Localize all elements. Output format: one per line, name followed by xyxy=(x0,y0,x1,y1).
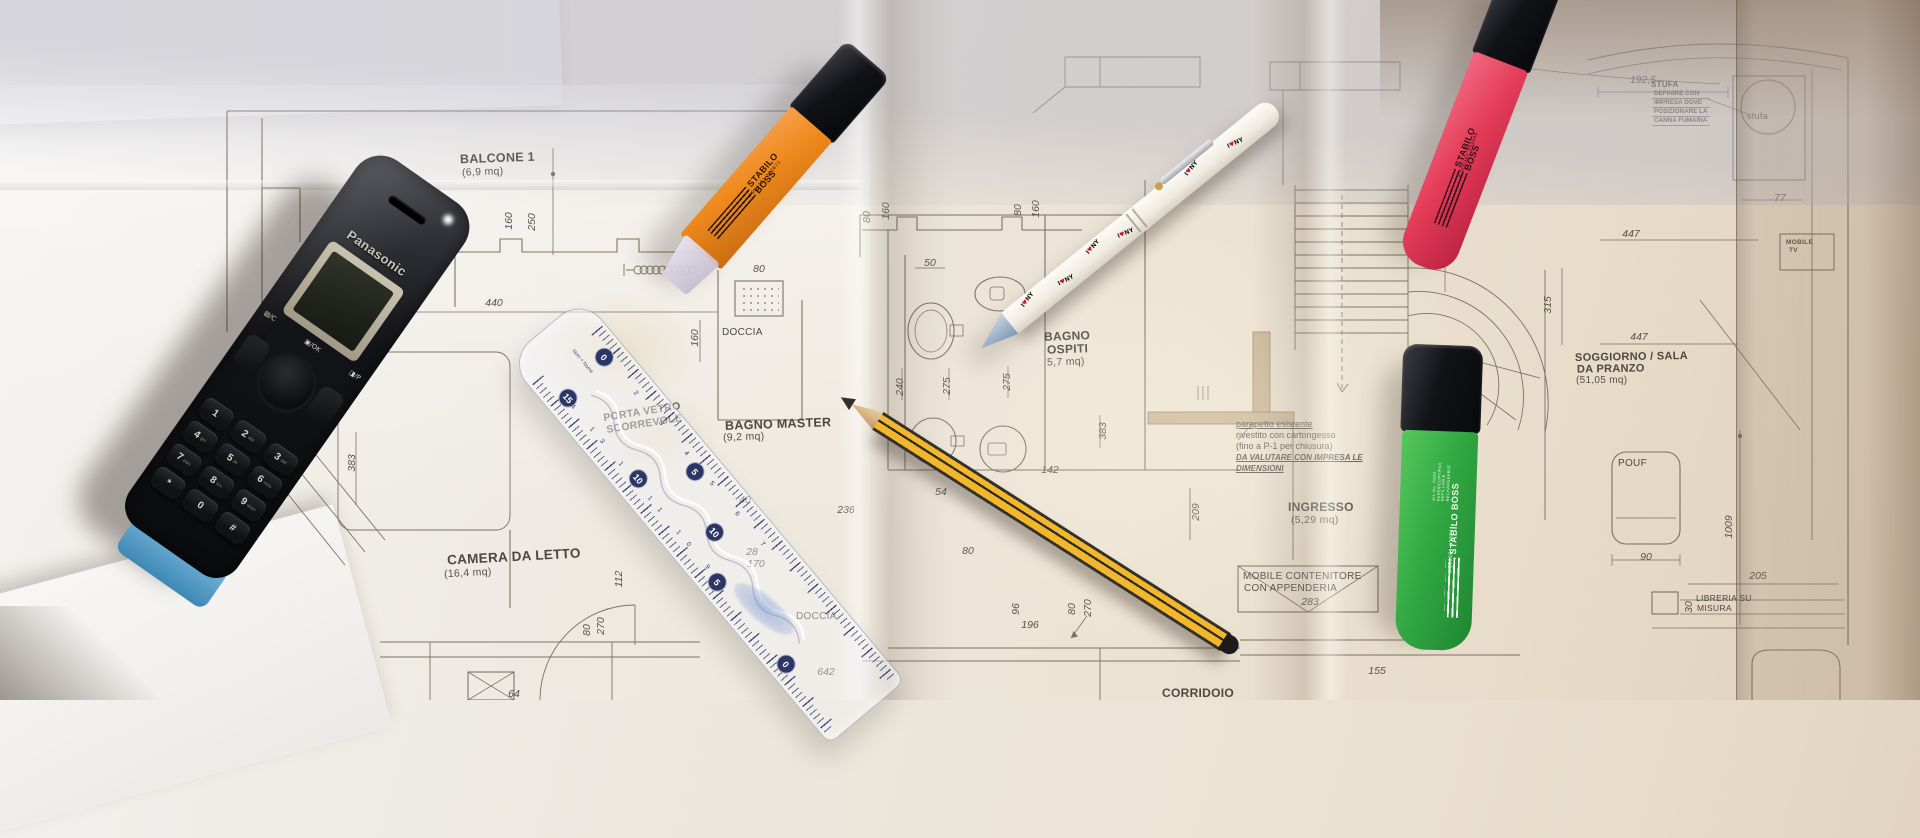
shower-symbol xyxy=(735,281,783,316)
door-symbol xyxy=(540,605,635,700)
paper-page-edge xyxy=(1736,0,1920,700)
highlighter-green: STABILO BOSS 4 006381 333641 Art.-No. 70… xyxy=(1393,344,1484,652)
wardrobe-symbol xyxy=(468,672,514,700)
dimension-label: 447 xyxy=(1630,331,1648,343)
dimension-label: 270 xyxy=(595,617,607,635)
dimension-label: 80 xyxy=(1012,204,1024,216)
dimension-label: 315 xyxy=(1542,296,1554,314)
desk-photo: { "scene": { "kind": "photograph", "subj… xyxy=(0,0,1920,700)
dimension-label: 112 xyxy=(613,571,625,588)
dimension-label: 64 xyxy=(508,688,520,700)
dimension-label: 160 xyxy=(689,329,701,347)
room-label-soggiorno-2: DA PRANZO xyxy=(1577,362,1645,375)
ruler-micro-text: Nom + Name xyxy=(571,348,595,375)
dimension-label: 80 xyxy=(753,263,765,275)
room-area-soggiorno: (51,05 mq) xyxy=(1576,375,1627,386)
room-label-corridoio: CORRIDOIO xyxy=(1162,686,1234,700)
dimension-label: 1009 xyxy=(1723,515,1735,538)
libreria-box xyxy=(1652,592,1678,614)
label-libreria-2: MISURA xyxy=(1697,603,1732,613)
highlighter-micro-text: Art.-No. 70/33 PAPER/COPY/FAX REFILLABLE… xyxy=(1432,439,1452,502)
dimension-label: 155 xyxy=(1368,665,1386,677)
dimension-label: 30 xyxy=(1683,601,1695,613)
dimension-label: 447 xyxy=(1622,228,1640,240)
highlighter-cap xyxy=(1400,344,1483,435)
dimension-label: 90 xyxy=(1640,551,1652,563)
dimension-label: 440 xyxy=(485,297,503,309)
dimension-label: 160 xyxy=(503,212,515,230)
dimension-label: 80 xyxy=(581,624,593,636)
label-doccia: DOCCIA xyxy=(722,327,763,338)
label-pouf: POUF xyxy=(1618,458,1647,469)
room-area-camera: (16,4 mq) xyxy=(444,566,492,580)
dimension-label: 383 xyxy=(346,454,358,472)
dimension-label: 250 xyxy=(526,213,538,231)
room-area-bagno-master: (9,2 mq) xyxy=(723,430,765,443)
